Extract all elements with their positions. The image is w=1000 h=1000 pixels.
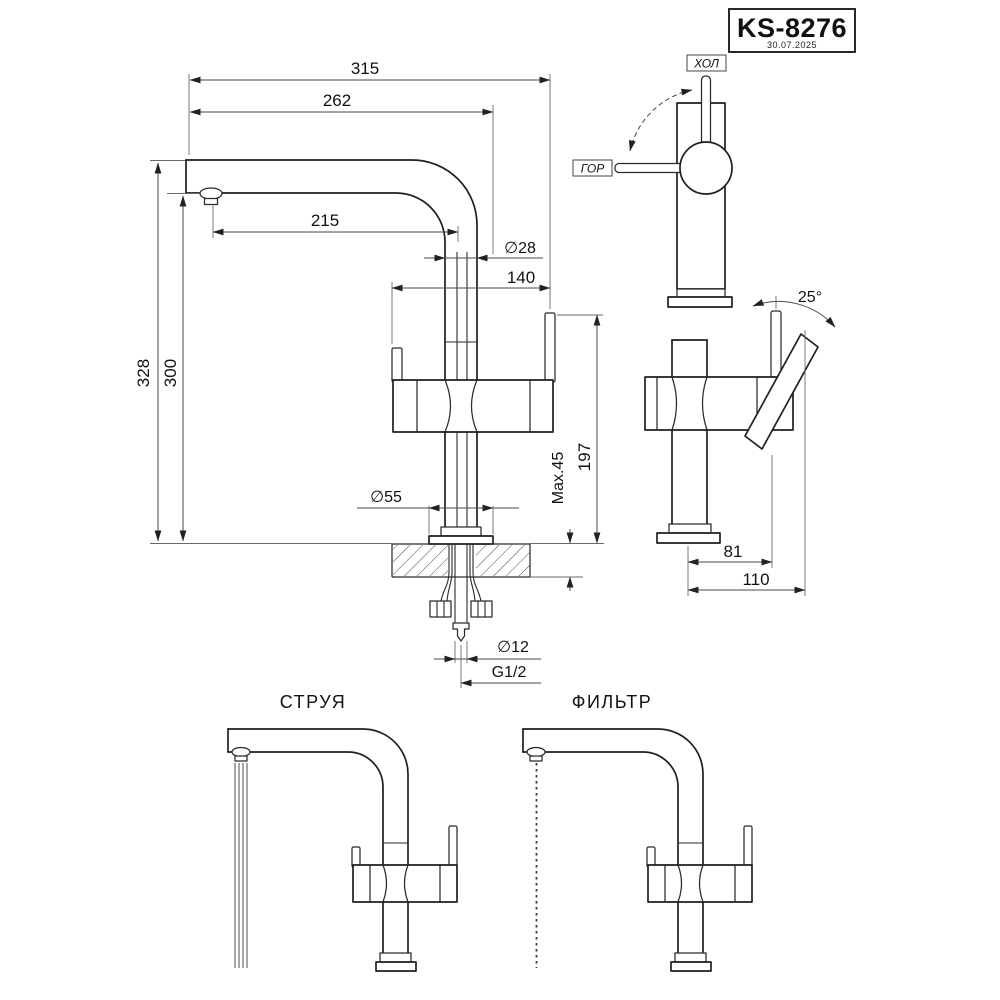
right-lever-stream [449,826,457,867]
handle-hub [680,142,732,194]
dim-handle-offset: 81 [724,542,743,561]
dim-pipe-diameter: ∅28 [504,240,536,257]
dim-total-reach: 315 [351,59,379,78]
extension-lines-angle [688,296,805,596]
aerator-filter [527,748,545,757]
dim-body-height: 197 [575,443,594,471]
handle-body [392,313,555,432]
stream-view-title: СТРУЯ [280,692,347,712]
dim-max-counter: Max.45 [550,452,567,505]
drawing-date: 30.07.2025 [767,40,817,50]
aerator-stream [232,748,250,757]
base-flange-angle [657,533,720,543]
dim-handle-span: 140 [507,268,535,287]
title-block: KS-8276 30.07.2025 [729,9,855,52]
main-front-view: 315 262 215 ∅28 140 328 300 ∅55 Max.45 1… [134,59,604,688]
dim-spout-inner: 215 [311,211,339,230]
base-flange-side [668,297,732,307]
water-stream-lines [235,763,247,968]
side-view-handles: ХОЛ ГОР [573,55,732,307]
filter-view: ФИЛЬТР [523,692,752,971]
left-lever-stream [352,847,360,867]
hot-label: ГОР [581,162,604,176]
side-view-angle: 25° 81 110 [645,289,835,596]
left-lever-filter [647,847,655,867]
dim-spout-outer: 262 [323,91,351,110]
faucet-drawing-svg: 315 262 215 ∅28 140 328 300 ∅55 Max.45 1… [0,0,1000,1000]
dim-handle-reach: 110 [742,570,769,589]
lever-vertical [771,311,781,377]
base-flange [429,527,493,544]
angle-arc [753,301,835,327]
dim-spout-height: 300 [161,359,180,387]
filter-view-title: ФИЛЬТР [572,692,652,712]
right-lever [545,313,555,382]
hose-nut-right [471,601,492,617]
cold-lever [702,76,711,146]
dim-tube-diameter: ∅12 [497,639,529,656]
aerator [200,188,222,205]
dim-handle-angle: 25° [798,289,822,306]
model-number: KS-8276 [737,13,847,43]
cold-label: ХОЛ [693,57,720,71]
stream-view: СТРУЯ [228,692,457,971]
countertop [392,544,530,577]
dim-base-diameter: ∅55 [370,489,402,506]
dim-thread-size: G1/2 [492,664,527,681]
technical-drawing-page: 315 262 215 ∅28 140 328 300 ∅55 Max.45 1… [0,0,1000,1000]
hot-lever [615,164,683,173]
tube-nozzle [453,623,469,641]
hose-nut-left [430,601,451,617]
left-lever [392,348,402,382]
right-lever-filter [744,826,752,867]
dim-total-height: 328 [134,359,153,387]
